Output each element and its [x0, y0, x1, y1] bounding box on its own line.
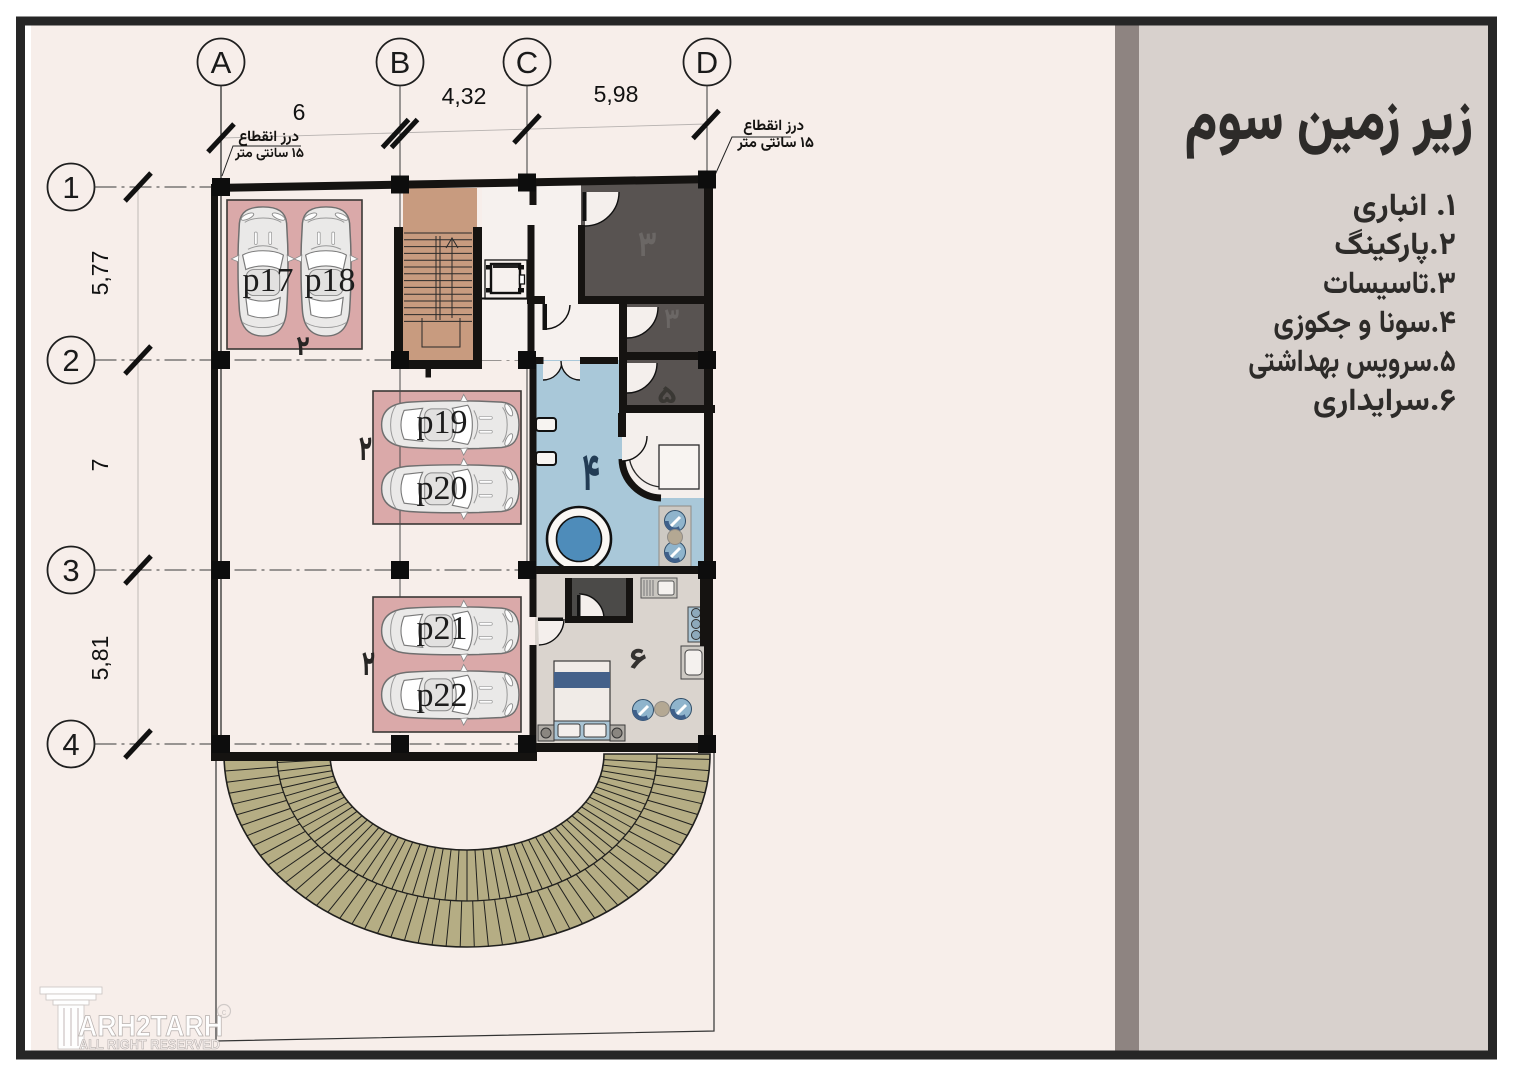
svg-text:p22: p22 — [417, 677, 468, 714]
svg-text:p20: p20 — [417, 470, 468, 507]
svg-text:3: 3 — [62, 553, 79, 588]
svg-text:p17: p17 — [243, 262, 294, 299]
svg-text:7: 7 — [87, 459, 113, 472]
svg-text:4: 4 — [62, 727, 79, 762]
svg-text:5,81: 5,81 — [87, 636, 113, 681]
svg-text:5,77: 5,77 — [87, 251, 113, 296]
svg-text:A: A — [211, 45, 232, 80]
svg-text:B: B — [390, 45, 411, 80]
svg-text:5,98: 5,98 — [594, 81, 639, 107]
svg-text:p19: p19 — [417, 404, 468, 441]
svg-text:c: c — [222, 1007, 227, 1017]
svg-text:6: 6 — [293, 99, 306, 125]
svg-text:p18: p18 — [305, 262, 356, 299]
svg-text:ALL RIGHT RESERVED: ALL RIGHT RESERVED — [79, 1037, 220, 1052]
svg-text:1: 1 — [62, 170, 79, 205]
svg-text:D: D — [696, 45, 718, 80]
svg-text:2: 2 — [62, 343, 79, 378]
svg-text:p21: p21 — [417, 610, 468, 647]
svg-text:C: C — [516, 45, 538, 80]
svg-text:4,32: 4,32 — [442, 83, 487, 109]
